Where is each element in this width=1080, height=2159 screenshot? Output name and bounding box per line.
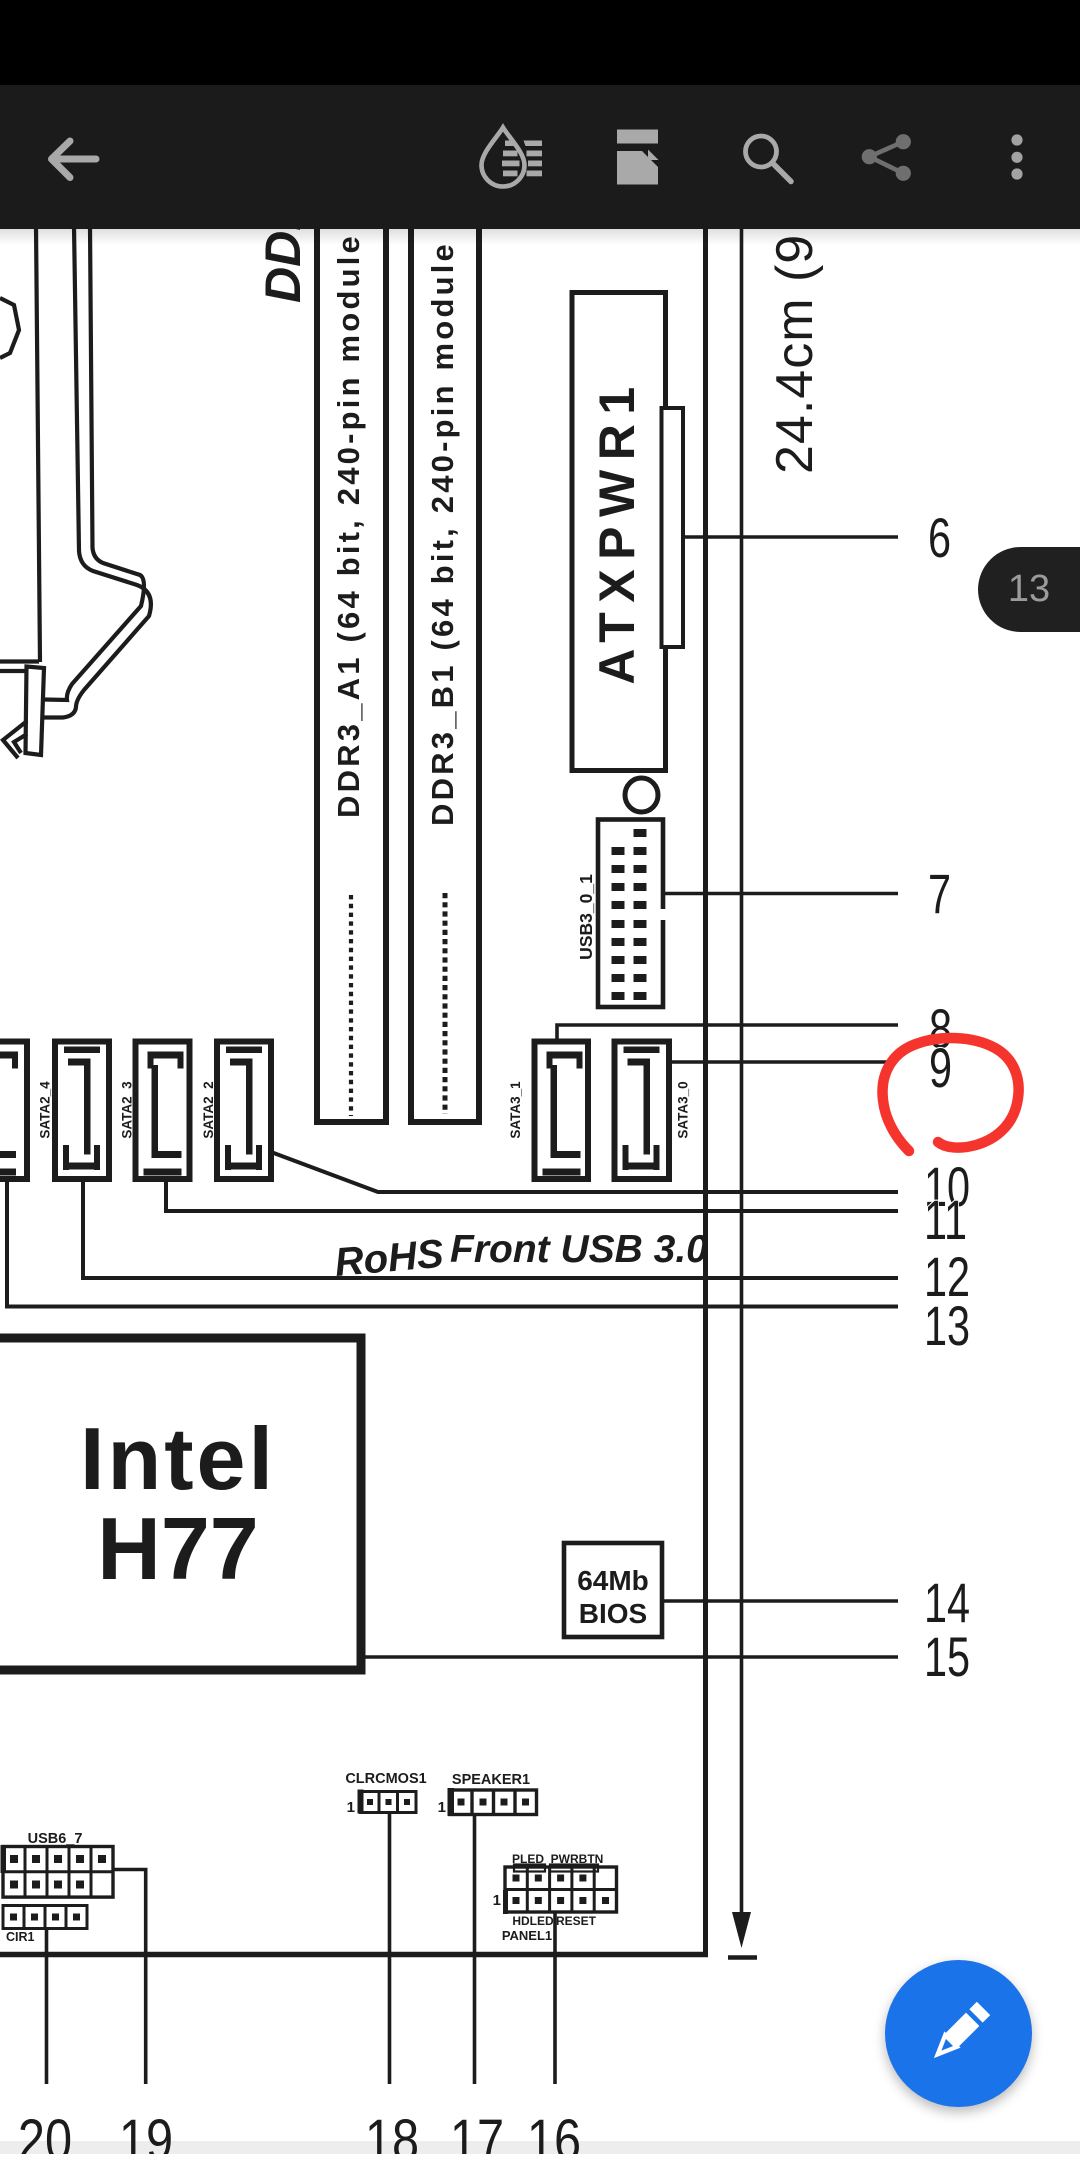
svg-text:Intel: Intel <box>80 1409 276 1508</box>
svg-text:SATA3_0: SATA3_0 <box>676 1081 691 1138</box>
svg-text:7: 7 <box>928 863 951 926</box>
svg-text:CIR1: CIR1 <box>6 1930 35 1944</box>
svg-text:15: 15 <box>924 1626 970 1689</box>
svg-text:SATA2_2: SATA2_2 <box>201 1081 216 1138</box>
svg-text:1: 1 <box>493 1892 501 1909</box>
svg-text:CLRCMOS1: CLRCMOS1 <box>345 1771 426 1787</box>
svg-text:1: 1 <box>347 1799 355 1816</box>
svg-text:USB3_0_1: USB3_0_1 <box>576 874 596 960</box>
svg-text:ATXPWR1: ATXPWR1 <box>589 377 645 684</box>
svg-text:Front USB 3.0: Front USB 3.0 <box>450 1228 708 1271</box>
svg-text:BIOS: BIOS <box>579 1598 647 1629</box>
svg-text:DDR3_A1 (64 bit, 240-pin modul: DDR3_A1 (64 bit, 240-pin module <box>331 233 366 818</box>
svg-text:6: 6 <box>928 507 951 570</box>
svg-text:RESET: RESET <box>556 1914 597 1928</box>
svg-text:DDR3_B1 (64 bit, 240-pin modul: DDR3_B1 (64 bit, 240-pin module <box>425 241 460 826</box>
svg-text:SATA2_3: SATA2_3 <box>120 1081 135 1139</box>
svg-text:SATA2_4: SATA2_4 <box>38 1081 53 1139</box>
svg-text:9: 9 <box>929 1037 952 1100</box>
svg-text:H77: H77 <box>97 1499 258 1598</box>
svg-text:11: 11 <box>924 1189 967 1252</box>
svg-text:SATA3_1: SATA3_1 <box>508 1081 523 1139</box>
svg-text:13: 13 <box>924 1295 970 1358</box>
svg-text:1: 1 <box>438 1799 446 1816</box>
svg-text:HDLED: HDLED <box>512 1914 554 1928</box>
svg-text:64Mb: 64Mb <box>577 1565 649 1596</box>
svg-text:SPEAKER1: SPEAKER1 <box>452 1772 530 1788</box>
svg-text:24.4cm (9.6: 24.4cm (9.6 <box>766 229 824 474</box>
svg-text:USB6_7: USB6_7 <box>28 1831 83 1847</box>
svg-text:PANEL1: PANEL1 <box>502 1928 552 1943</box>
